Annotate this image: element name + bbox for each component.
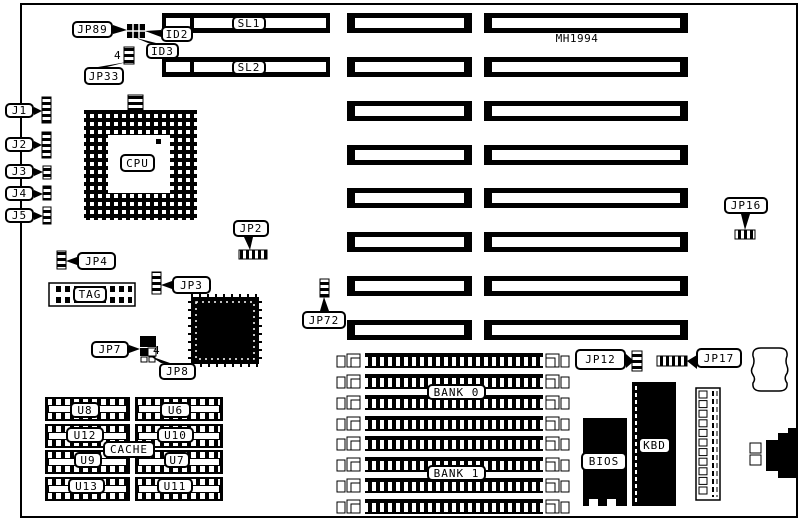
- isa-slot-row-8: [347, 320, 688, 340]
- jp3-label: JP3: [172, 276, 211, 294]
- leader-jp72: [320, 297, 329, 311]
- motherboard-jumper-diagram: JP89ID2ID3JP33J1J2J3J4J5SL1SL2CPUJP2JP4T…: [0, 0, 801, 520]
- simm-socket-row-4: [337, 416, 569, 431]
- simm-socket-row-1: [337, 353, 569, 368]
- isa-slot-row-7: [347, 276, 688, 296]
- j2-connector: [42, 132, 51, 158]
- u13-label: U13: [68, 478, 105, 494]
- j5-connector: [43, 207, 51, 224]
- bios-label: BIOS: [581, 452, 627, 471]
- id2-label: ID2: [161, 26, 193, 42]
- j3-connector: [43, 166, 51, 179]
- isa-slot-row-4: [347, 145, 688, 165]
- leader-j3: [34, 168, 43, 176]
- isa-slot-row-3: [347, 101, 688, 121]
- jp89-label: JP89: [72, 21, 113, 38]
- leader-jp7: [129, 345, 140, 353]
- leader-j5: [34, 212, 43, 220]
- leader-jp4: [66, 257, 77, 265]
- mh1994-label: MH1994: [549, 32, 605, 45]
- isa-slot-row-5: [347, 188, 688, 208]
- pin4_mid-label: 4: [152, 344, 161, 356]
- cpu-label: CPU: [120, 154, 155, 172]
- j1-connector: [42, 97, 51, 123]
- bank1-label: BANK 1: [427, 465, 486, 481]
- u7-label: U7: [164, 452, 190, 468]
- jp17-label: JP17: [696, 348, 742, 368]
- simm-socket-row-8: [337, 499, 569, 514]
- u8-label: U8: [70, 402, 100, 418]
- jp16-jumper: [735, 230, 755, 239]
- jp17-jumper: [657, 356, 687, 366]
- sl1-label: SL1: [232, 16, 266, 31]
- u11-label: U11: [157, 478, 193, 494]
- u6-label: U6: [160, 402, 191, 418]
- jp89-jumper-block: [127, 24, 145, 38]
- leader-id2: [145, 30, 161, 37]
- jp7-label: JP7: [91, 341, 129, 358]
- power-header-connector: [696, 388, 720, 500]
- j4-connector: [43, 186, 51, 200]
- u12-label: U12: [66, 427, 104, 443]
- leader-jp3: [161, 281, 172, 289]
- leader-j2: [34, 141, 42, 149]
- j3-label: J3: [5, 164, 34, 179]
- jp72-jumper: [320, 279, 329, 297]
- sl2-label: SL2: [232, 60, 266, 75]
- j1-label: J1: [5, 103, 34, 118]
- leader-jp89: [113, 25, 127, 34]
- leader-j4: [34, 190, 43, 198]
- jp2-label: JP2: [233, 220, 269, 237]
- jp8-label: JP8: [159, 363, 196, 380]
- battery-outline: [752, 348, 788, 391]
- leader-jp2: [244, 237, 253, 250]
- leader-j1: [34, 107, 42, 115]
- kbd-label: KBD: [638, 437, 671, 454]
- chipset-qfp: [191, 297, 259, 364]
- j2-label: J2: [5, 137, 34, 152]
- j4-label: J4: [5, 186, 34, 201]
- din-keyboard-connector: [750, 428, 798, 478]
- jp3-jumper: [152, 272, 161, 294]
- jp33-jumper: [124, 47, 134, 64]
- jp4-label: JP4: [77, 252, 116, 270]
- pin4_top-label: 4: [113, 49, 122, 61]
- jp16-label: JP16: [724, 197, 768, 214]
- jp72-label: JP72: [302, 311, 346, 329]
- u9-label: U9: [74, 452, 102, 468]
- leader-jp16: [741, 214, 750, 230]
- id3-label: ID3: [146, 43, 179, 59]
- jp4-jumper: [57, 251, 66, 269]
- u10-label: U10: [157, 427, 194, 443]
- isa-slot-row-6: [347, 232, 688, 252]
- jp33-label: JP33: [84, 67, 124, 85]
- bank0-label: BANK 0: [427, 384, 486, 400]
- tag-label: TAG: [73, 286, 107, 303]
- jp2-jumper: [239, 250, 267, 259]
- cpu-aux-connector: [128, 95, 143, 110]
- cache-label: CACHE: [103, 441, 155, 458]
- simm-socket-row-5: [337, 436, 569, 451]
- jp12-label: JP12: [575, 349, 626, 370]
- j5-label: J5: [5, 208, 34, 223]
